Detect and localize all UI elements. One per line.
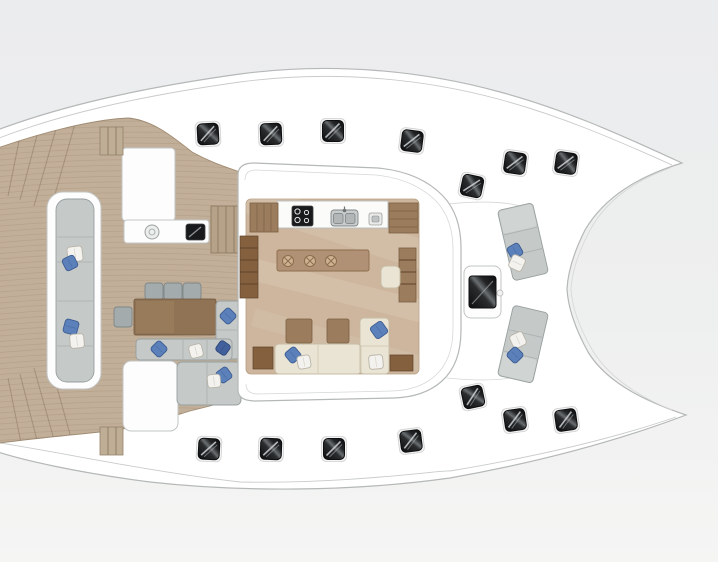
door-latch: [497, 290, 503, 296]
salon-cabinet: [253, 347, 273, 369]
deck-hatch: [321, 119, 346, 144]
pillow: [69, 333, 84, 348]
deck-plan-canvas: [0, 0, 718, 562]
pillow: [207, 374, 221, 388]
port-companionway-steps: [240, 236, 258, 298]
aft-bench-cushion: [56, 199, 94, 382]
galley-cabinet-port: [250, 203, 278, 232]
ottoman: [327, 319, 349, 343]
deck-hatch: [458, 382, 488, 412]
pillow: [188, 343, 204, 359]
pillow: [296, 354, 311, 369]
pillow: [62, 318, 79, 335]
dining-chair: [145, 283, 163, 300]
ottoman: [286, 319, 312, 343]
deck-hatch: [322, 437, 347, 462]
starboard-companionway-steps: [399, 248, 416, 302]
galley-island: [277, 250, 369, 271]
deck-hatch: [398, 127, 426, 155]
helm-module: [122, 148, 175, 221]
foredeck-door: [464, 266, 503, 318]
deck-hatch: [397, 427, 425, 455]
deck-hatch: [501, 149, 529, 177]
bar-stool: [326, 256, 337, 267]
galley-appliance: [369, 213, 382, 225]
nav-armchair: [381, 266, 400, 288]
boarding-steps-starboard: [100, 427, 123, 455]
deck-hatch: [457, 171, 487, 201]
deck-hatch: [552, 149, 580, 177]
deck-hatch: [258, 121, 284, 147]
dining-chair: [164, 283, 182, 300]
salon-cabinet: [390, 355, 413, 371]
bar-stool: [305, 256, 316, 267]
deck-hatch: [552, 406, 580, 434]
dining-chair: [183, 283, 201, 300]
pillow: [368, 354, 383, 369]
aft-bench: [47, 192, 101, 389]
dining-chair: [114, 307, 132, 327]
bar-stool: [283, 256, 294, 267]
deck-hatch: [195, 121, 221, 147]
helm-winch: [145, 225, 159, 239]
cockpit-dining-table: [134, 299, 216, 335]
boarding-steps-port: [100, 127, 123, 155]
deck-hatch: [258, 436, 284, 462]
bar-stools: [283, 256, 337, 267]
deck-hatch: [501, 406, 529, 434]
deck-hatch: [196, 436, 222, 462]
helm-display: [186, 224, 205, 240]
cooktop: [292, 206, 313, 226]
salon: [238, 163, 461, 401]
galley-cabinet-starboard: [389, 203, 418, 233]
cockpit-module: [123, 361, 178, 431]
